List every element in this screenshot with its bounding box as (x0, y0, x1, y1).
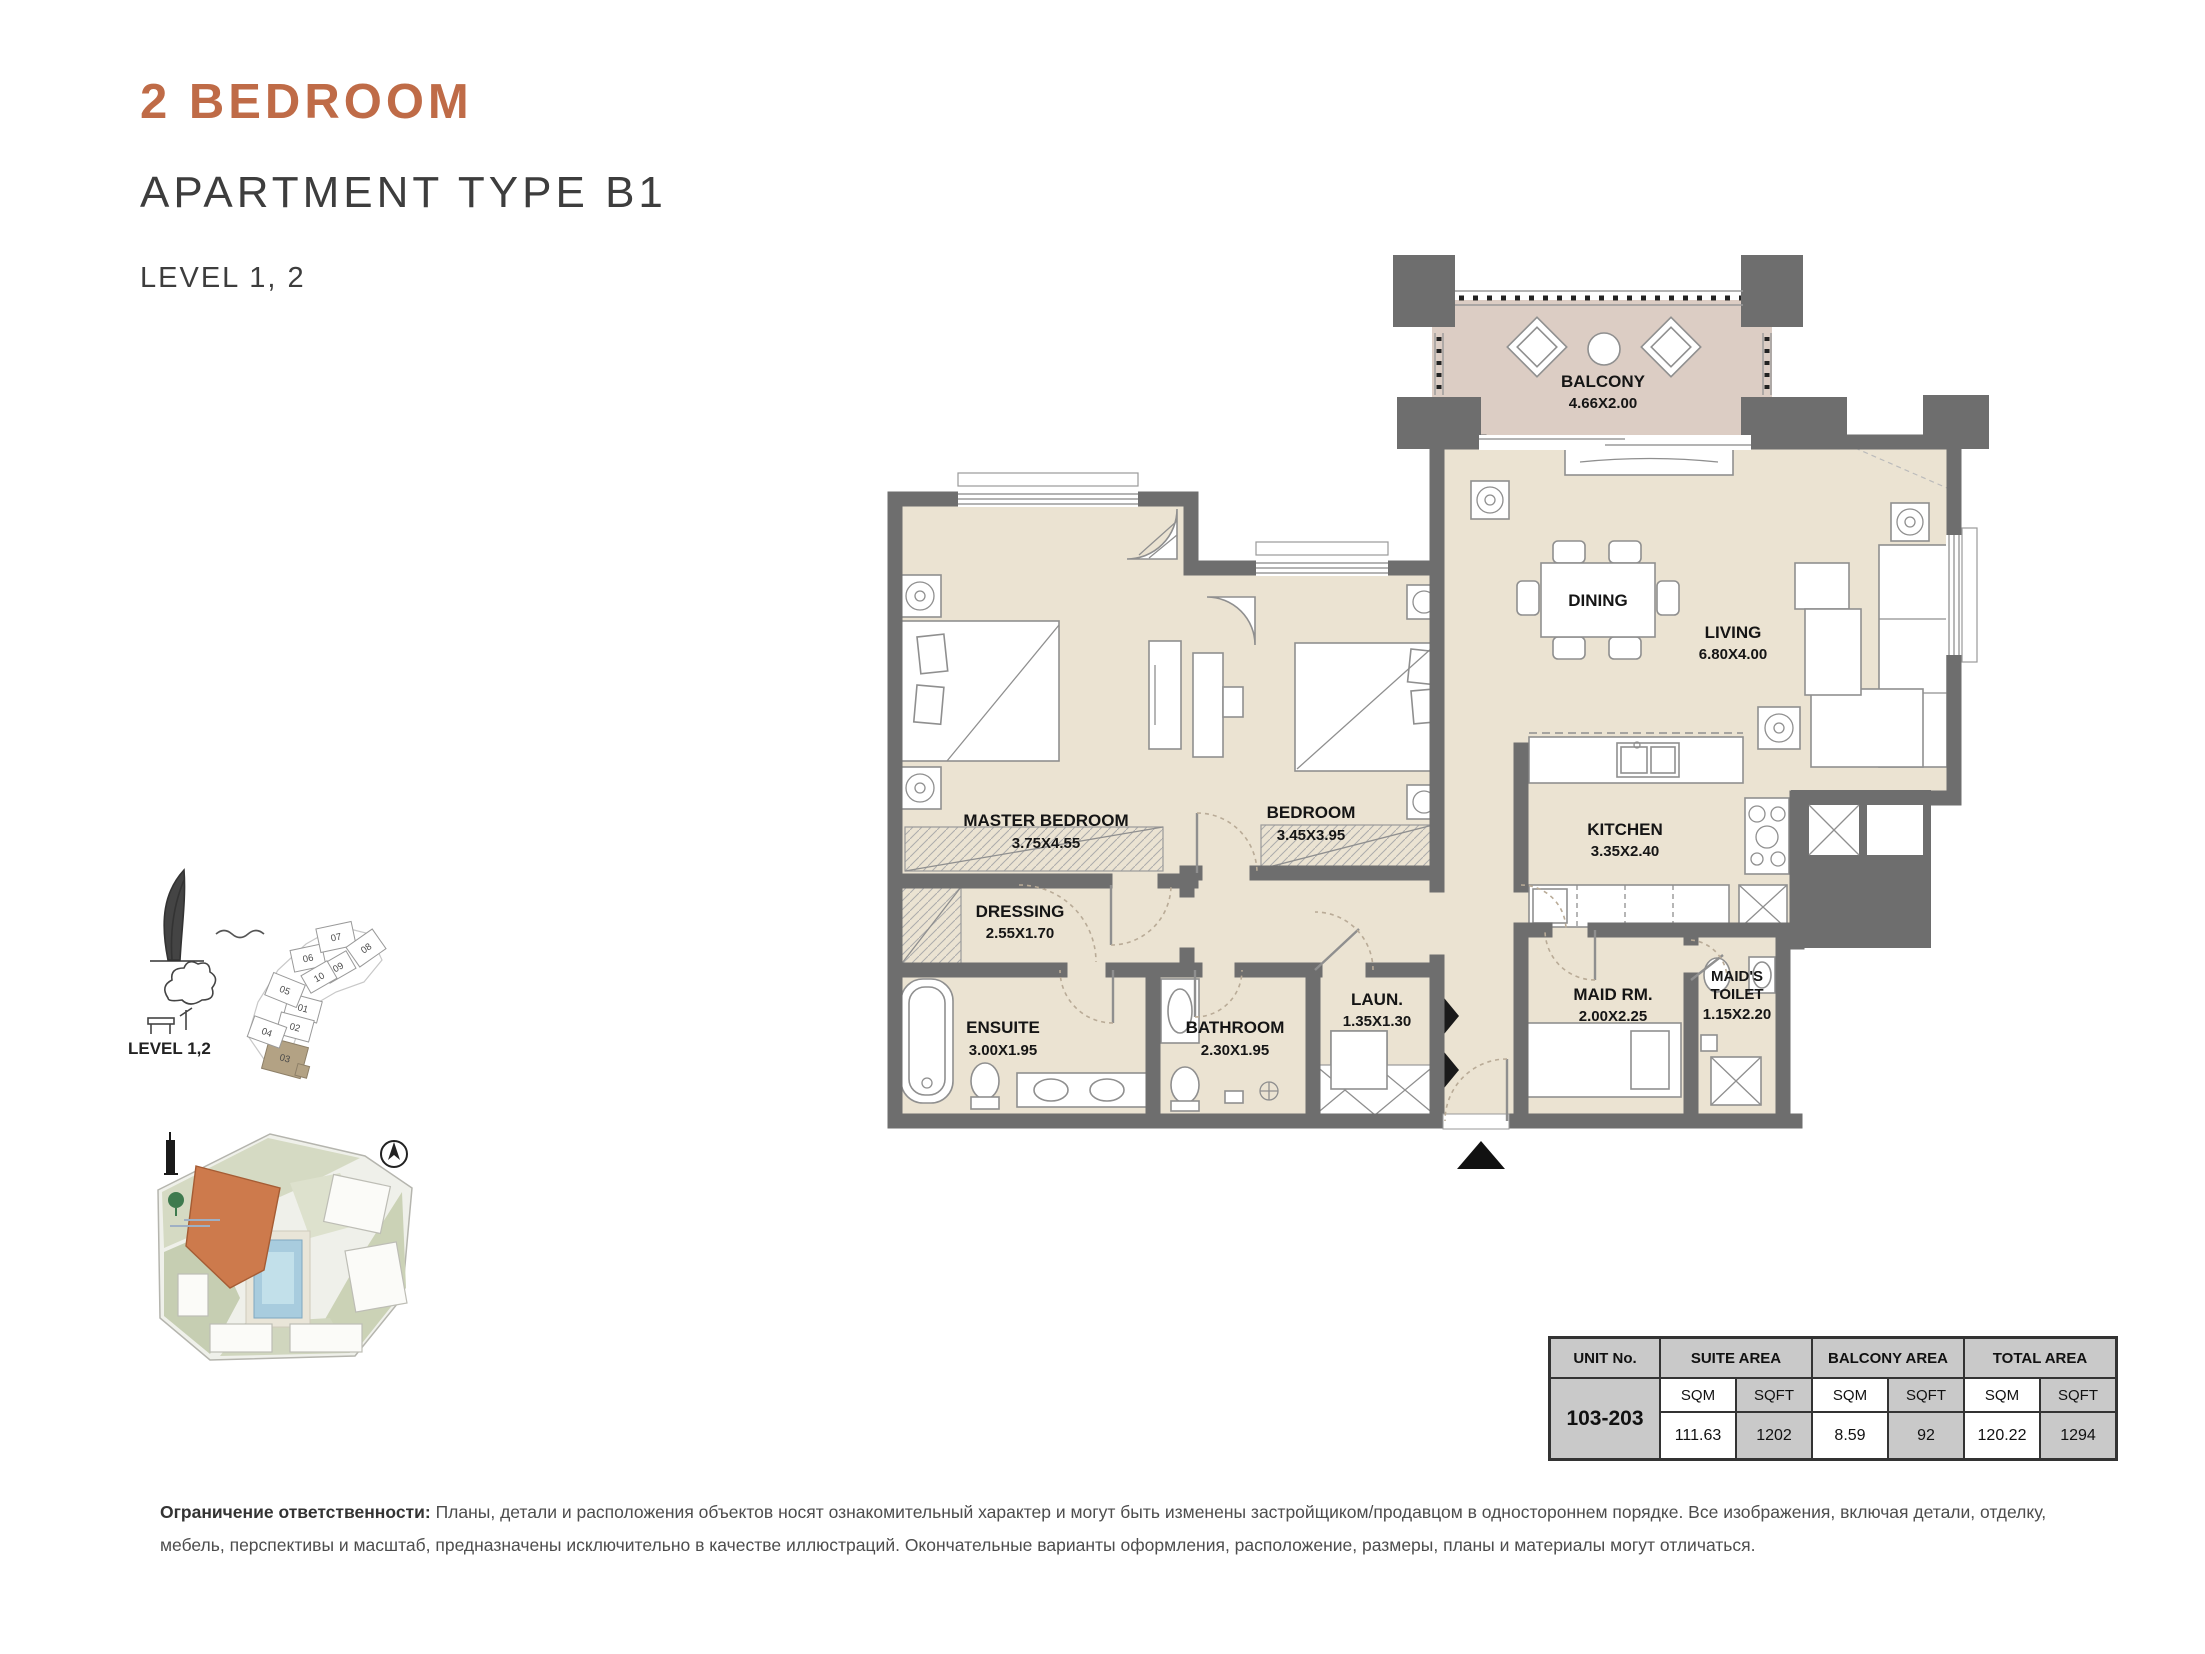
keyplan: LEVEL 1,2 01 02 03 04 05 06 07 08 09 10 (120, 820, 460, 1110)
maid-toilet-label-2: TOILET (1710, 986, 1763, 1003)
keyplan-level-label: LEVEL 1,2 (128, 1039, 211, 1058)
total-sqft-value: 1294 (2040, 1412, 2116, 1459)
maid-room-label: MAID RM. (1573, 985, 1652, 1004)
suite-sqm-value: 111.63 (1660, 1412, 1736, 1459)
col-unit-no: UNIT No. (1550, 1338, 1660, 1378)
total-sqft-header: SQFT (2040, 1378, 2116, 1412)
balcony-label: BALCONY (1561, 372, 1646, 391)
siteplan-thumbnail (150, 1128, 422, 1370)
master-bedroom-label: MASTER BEDROOM (963, 811, 1128, 830)
total-sqm-header: SQM (1964, 1378, 2040, 1412)
keyplan-units: 01 02 03 04 05 06 07 08 09 10 (247, 922, 386, 1081)
suite-sqft-header: SQFT (1736, 1378, 1812, 1412)
unit-07: 07 (330, 931, 343, 944)
living-label: LIVING (1705, 623, 1762, 642)
col-balcony-area: BALCONY AREA (1812, 1338, 1964, 1378)
balcony-sqm-value: 8.59 (1812, 1412, 1888, 1459)
bathroom-toilet (1171, 1067, 1199, 1103)
landmark-tower-icon (164, 1132, 178, 1174)
balcony-dims: 4.66X2.00 (1569, 395, 1637, 412)
dining-label: DINING (1568, 591, 1628, 610)
bathroom-label: BATHROOM (1186, 1018, 1285, 1037)
col-suite-area: SUITE AREA (1660, 1338, 1812, 1378)
unit-number: 103-203 (1550, 1378, 1660, 1459)
balcony-sqft-header: SQFT (1888, 1378, 1964, 1412)
dressing-dims: 2.55X1.70 (986, 925, 1054, 942)
maid-toilet-dims: 1.15X2.20 (1703, 1006, 1771, 1023)
page-title: 2 BEDROOM (140, 74, 473, 130)
entry-arrow (1457, 1141, 1505, 1169)
apartment-type-subtitle: APARTMENT TYPE B1 (140, 168, 667, 218)
disclaimer: Ограничение ответственности: Планы, дета… (160, 1496, 2065, 1562)
bedroom-dims: 3.45X3.95 (1277, 827, 1345, 844)
living-dims: 6.80X4.00 (1699, 646, 1767, 663)
disclaimer-text: Планы, детали и расположения объектов но… (160, 1502, 2046, 1555)
kitchen-dims: 3.35X2.40 (1591, 843, 1659, 860)
ensuite-label: ENSUITE (966, 1018, 1040, 1037)
dressing-label: DRESSING (976, 902, 1065, 921)
ensuite-dims: 3.00X1.95 (969, 1042, 1037, 1059)
level-subtitle: LEVEL 1, 2 (140, 262, 306, 295)
pool-inner (262, 1252, 294, 1304)
balcony-floor (1432, 300, 1772, 440)
ensuite-toilet (971, 1063, 999, 1099)
floorplan: BALCONY 4.66X2.00 DINING LIVING 6.80X4.0… (865, 245, 2025, 1185)
suite-sqm-header: SQM (1660, 1378, 1736, 1412)
maid-toilet-label-1: MAID'S (1711, 968, 1763, 985)
bathroom-dims: 2.30X1.95 (1201, 1042, 1269, 1059)
kitchen-label: KITCHEN (1587, 820, 1663, 839)
total-sqm-value: 120.22 (1964, 1412, 2040, 1459)
bedroom-label: BEDROOM (1267, 803, 1356, 822)
laundry-label: LAUN. (1351, 990, 1403, 1009)
sea-icon (216, 931, 264, 938)
area-table: UNIT No. SUITE AREA BALCONY AREA TOTAL A… (1548, 1336, 2118, 1461)
maid-room-dims: 2.00X2.25 (1579, 1008, 1647, 1025)
page: 2 BEDROOM APARTMENT TYPE B1 LEVEL 1, 2 (0, 0, 2205, 1654)
compass-icon (381, 1141, 407, 1167)
balcony-sqm-header: SQM (1812, 1378, 1888, 1412)
balcony-sqft-value: 92 (1888, 1412, 1964, 1459)
master-bedroom-dims: 3.75X4.55 (1012, 835, 1080, 852)
laundry-dims: 1.35X1.30 (1343, 1013, 1411, 1030)
unit-06: 06 (302, 952, 315, 965)
tree-bench-icon (148, 962, 216, 1034)
col-total-area: TOTAL AREA (1964, 1338, 2116, 1378)
suite-sqft-value: 1202 (1736, 1412, 1812, 1459)
burj-al-arab-icon (150, 870, 204, 961)
disclaimer-label: Ограничение ответственности: (160, 1502, 431, 1522)
